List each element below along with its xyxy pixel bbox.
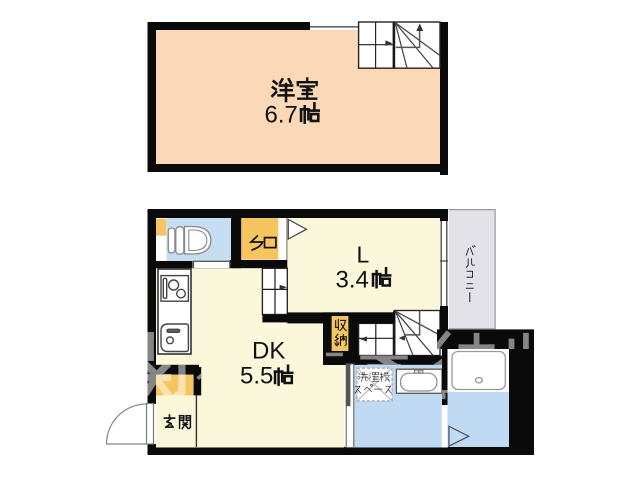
svg-text:L: L [357,242,370,268]
svg-text:6.7: 6.7 [265,102,298,129]
svg-text:DK: DK [252,338,285,365]
svg-text:5.5: 5.5 [240,363,273,390]
svg-text:3.4: 3.4 [336,267,369,294]
